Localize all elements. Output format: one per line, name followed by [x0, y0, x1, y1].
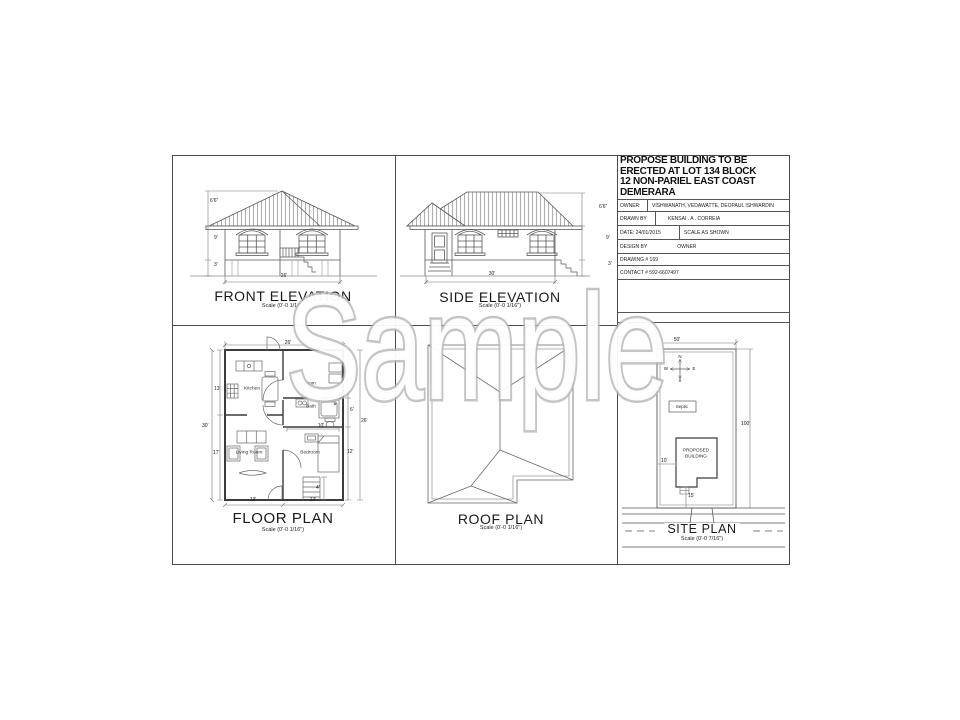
side-dim-roof: 6'6" [599, 205, 607, 210]
floor-dim-left-upper: 13' [214, 387, 221, 392]
drawing-number: DRAWING # 169 [620, 257, 658, 263]
room-label-bedroom-2: Bedroom [300, 452, 319, 457]
floor-dim-bottom-right: 13' [310, 498, 317, 503]
site-building-label-line1: PROPOSED [683, 449, 709, 454]
roof-plan-title: ROOF PLAN [458, 512, 544, 526]
front-window-left [236, 229, 268, 256]
site-plan-scale: Scale (0'-0 7/16") [679, 537, 725, 543]
design-by-value: OWNER [677, 244, 696, 250]
site-dim-depth: 100' [741, 422, 750, 427]
front-window-right [296, 229, 328, 256]
site-dim-front: 15' [688, 494, 695, 499]
side-elevation-title: SIDE ELEVATION [439, 290, 560, 304]
title-block-row-thin [618, 313, 790, 323]
floor-dim-bottom-left: 13' [250, 498, 257, 503]
compass-west-label: W [664, 367, 668, 371]
site-plan-title: SITE PLAN [664, 523, 739, 536]
floor-dim-right-upper: 8' [350, 377, 354, 382]
front-eave-band [206, 226, 358, 230]
title-block-row-contact: CONTACT # 592-6607497 [618, 266, 790, 280]
floor-plan-title: FLOOR PLAN [232, 511, 333, 526]
title-block-row-drawn-by: DRAWN BY KENSAI . A . CORREIA [618, 212, 790, 226]
drawn-by-value: KENSAI . A . CORREIA [656, 216, 720, 222]
floor-interior-walls [225, 350, 343, 500]
site-septic-label: Septic [676, 404, 688, 408]
front-dim-width: 26' [281, 274, 288, 279]
floor-outer-walls [225, 350, 343, 500]
site-dimension-lines [655, 339, 753, 508]
title-block-row-date-scale: DATE: 24/01/2015 SCALE AS SHOWN [618, 226, 790, 240]
side-steps [555, 260, 577, 276]
contact-number: CONTACT # 592-6607497 [620, 270, 679, 276]
room-label-kitchen: Kitchen [244, 388, 260, 393]
room-label-bedroom-1: Bedroom [296, 383, 315, 388]
floor-dim-right-mid: 6' [350, 408, 354, 413]
floor-dim-top: 26' [285, 341, 292, 346]
roof-outline-outer [428, 345, 573, 503]
title-line-1: PROPOSE BUILDING TO BE [620, 156, 788, 167]
floor-door-swings [263, 337, 307, 500]
floor-dim-left-total: 30' [202, 424, 209, 429]
title-block-heading: PROPOSE BUILDING TO BE ERECTED AT LOT 13… [618, 155, 790, 200]
title-line-4: DEMERARA [620, 188, 788, 199]
side-window-right [527, 230, 557, 256]
front-elevation-title: FRONT ELEVATION [214, 289, 351, 303]
title-block-row-drawing-number: DRAWING # 169 [618, 254, 790, 266]
side-elevation-scale: Scale (0'-0 1/16") [479, 304, 521, 310]
drawn-by-label: DRAWN BY [618, 212, 656, 225]
compass-north-label: N [678, 355, 681, 359]
compass-south-label: S [679, 379, 682, 383]
roof-plan-scale: Scale (0'-0 1/16") [480, 526, 522, 532]
site-building-label-line2: BUILDING [685, 455, 707, 460]
floor-dim-right-lower: 12' [347, 450, 354, 455]
front-dim-wall: 9' [214, 236, 218, 241]
floor-dim-steps: 4' [316, 486, 320, 491]
front-dim-roof: 6'6" [210, 199, 218, 204]
site-building-outline [676, 438, 717, 487]
design-by-label: DESIGN BY [618, 244, 647, 250]
floor-furniture [227, 361, 342, 500]
roof-outline-inner [432, 349, 569, 499]
floor-dimension-lines [210, 341, 363, 507]
front-roof [209, 191, 355, 226]
floor-plan-scale: Scale (0'-0 1/16") [262, 528, 304, 534]
room-label-living-room: Living Room [236, 452, 263, 457]
site-compass [670, 359, 690, 379]
title-block-row-empty [618, 280, 790, 313]
roof-hip-lines [428, 345, 573, 503]
site-dim-width: 50' [674, 338, 681, 343]
side-eave-band [410, 226, 582, 230]
room-label-bath: Bath [306, 406, 316, 411]
date-value: DATE: 24/01/2015 [618, 226, 680, 239]
floor-dim-right-total: 26' [361, 419, 368, 424]
side-dim-base: 3' [608, 262, 612, 267]
floor-dim-interior: 10' [318, 424, 325, 429]
side-door [428, 233, 451, 271]
title-block-row-owner: OWNER: VISHWANATH, VEDAWATTE, DEOPAUL IS… [618, 200, 790, 212]
side-window-left [455, 230, 485, 256]
owner-value: VISHWANATH, VEDAWATTE, DEOPAUL ISHWARDIN [648, 203, 774, 209]
drawing-sheet-page: 6'6" 9' 3' 26' FRONT ELEVATION Scale (0'… [0, 0, 960, 720]
side-small-window [498, 230, 518, 237]
front-elevation-scale: Scale (0'-0 1/16") [262, 304, 304, 310]
front-dim-base: 3' [214, 263, 218, 268]
floor-dim-left-lower: 17' [213, 451, 220, 456]
title-block: PROPOSE BUILDING TO BE ERECTED AT LOT 13… [618, 155, 790, 323]
side-dim-wall: 9' [606, 236, 610, 241]
compass-east-label: E [693, 367, 696, 371]
scale-note: SCALE AS SHOWN [680, 230, 729, 236]
title-block-row-design-by: DESIGN BY OWNER [618, 240, 790, 254]
owner-label: OWNER: [618, 200, 648, 211]
side-dim-width: 30' [489, 272, 496, 277]
site-dim-side: 10' [661, 459, 668, 464]
